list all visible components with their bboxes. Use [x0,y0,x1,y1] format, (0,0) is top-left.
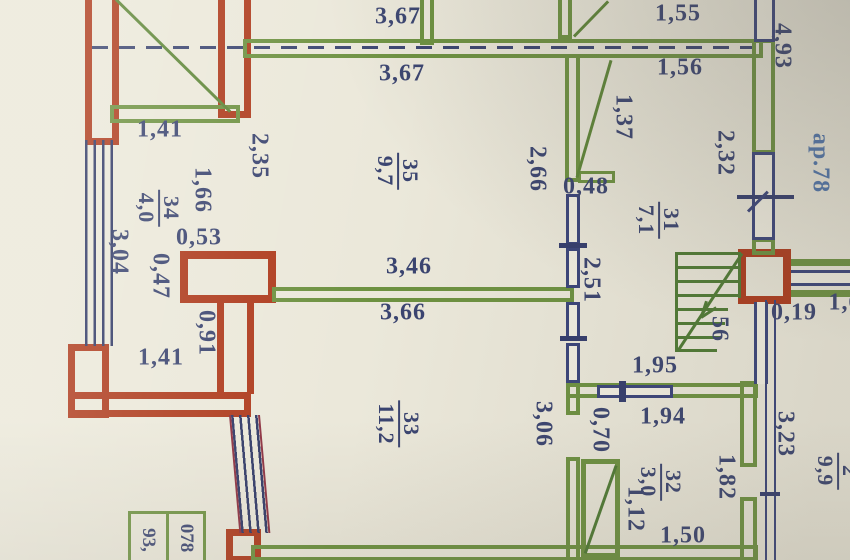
wall-brick-topleft-a [85,0,119,145]
room-label-32: 32 3,0 [637,464,685,501]
dim-label: 1,82 [713,454,740,500]
pier-brick-right [738,249,791,304]
dim-label: 3,46 [386,254,432,281]
wall-center-vertical-lower-b [566,457,580,560]
dim-label: 3,23 [772,411,799,457]
room-area: 9,7 [374,153,397,190]
wall-right-stub-core [791,270,850,286]
stair-tread [675,252,741,255]
dim-label: 2,51 [578,257,605,303]
room-area: 11,2 [375,400,398,447]
dim-label: 0,91 [193,310,220,356]
wall-right-exterior-stub [752,238,775,255]
room-label-35: 35 9,7 [374,153,422,190]
stair-tread [675,280,741,283]
apartment-label: ар.78 [807,133,834,193]
window-center-pane1 [566,194,580,245]
dim-label: 1,56 [657,55,703,82]
floor-plan: 93, 078 3,67 3,67 1,55 1,56 4,93 1,41 2,… [0,0,850,560]
window-center-tick2 [560,336,587,341]
dim-label: 3,67 [379,61,425,88]
dim-label: 0,48 [563,174,609,201]
dim-label: 56 [706,316,733,342]
dim-label: 1,37 [610,94,637,140]
window-room32-top [597,385,673,398]
room-number: 33 [398,400,423,447]
wall-top-vertical-a [420,0,434,45]
door-leaf-center [576,60,613,178]
stamp-box-divider [166,511,169,560]
dim-label: 1,94 [640,404,686,431]
room-label-right-edge: 2 9,9 [814,453,850,490]
diagonal-topleft [115,0,231,113]
window-center-pane4 [566,343,580,383]
dim-label: 3,06 [530,401,557,447]
door-leaf-top [573,0,609,37]
room-area: 3,0 [637,464,660,501]
dim-label: 2,32 [712,130,739,176]
dim-label: 4,93 [769,23,796,69]
dim-label: 3,04 [106,229,133,275]
room-label-34: 34 4,0 [135,190,183,227]
wall-hatched-bottom-left [229,415,270,533]
pier-brick-left [180,251,276,303]
wall-top-vertical-b [558,0,572,39]
dim-label: 0,53 [176,225,222,252]
wall-right-stub-green-top [791,259,850,266]
dim-label: 3,67 [375,4,421,31]
dim-label: 3,66 [380,300,426,327]
dim-label: 1,66 [189,167,216,213]
witness-line-tick [760,492,780,496]
dim-label: 1,55 [655,1,701,28]
dim-label: 0,47 [147,253,174,299]
room-label-33: 33 11,2 [375,400,423,447]
dim-label: 1,41 [138,345,184,372]
room-area: 7,1 [635,202,658,239]
wall-brick-L-horizontal [68,392,251,417]
room-area: 9,9 [814,453,837,490]
dim-label: 1,6 [829,290,850,317]
dim-label: 0,70 [587,407,614,453]
room-label-31: 31 7,1 [635,202,683,239]
room-number: 34 [158,190,183,227]
dim-label: 1,41 [137,117,183,144]
dim-label: 0,19 [771,300,817,327]
stair-tread [675,349,717,352]
dim-label: 2,35 [246,133,273,179]
room-number: 35 [397,153,422,190]
dim-label: 1,95 [632,353,678,380]
wall-brick-below-pier [217,298,254,394]
room-area: 4,0 [135,190,158,227]
wall-right-interior-upper [740,381,757,467]
window-room32-tick [619,381,626,402]
dim-label: 1,50 [660,523,706,550]
wall-brick-topleft-b [218,0,251,118]
dim-label: 2,66 [524,146,551,192]
wall-center-vertical-upper [565,54,580,182]
window-center-pane3 [566,302,580,340]
stair-tread [675,294,741,297]
stamp-cell-right: 078 [175,524,197,553]
room-number: 2 [837,453,850,490]
stamp-cell-left: 93, [137,528,159,552]
room-number: 31 [658,202,683,239]
room-number: 32 [660,464,685,501]
